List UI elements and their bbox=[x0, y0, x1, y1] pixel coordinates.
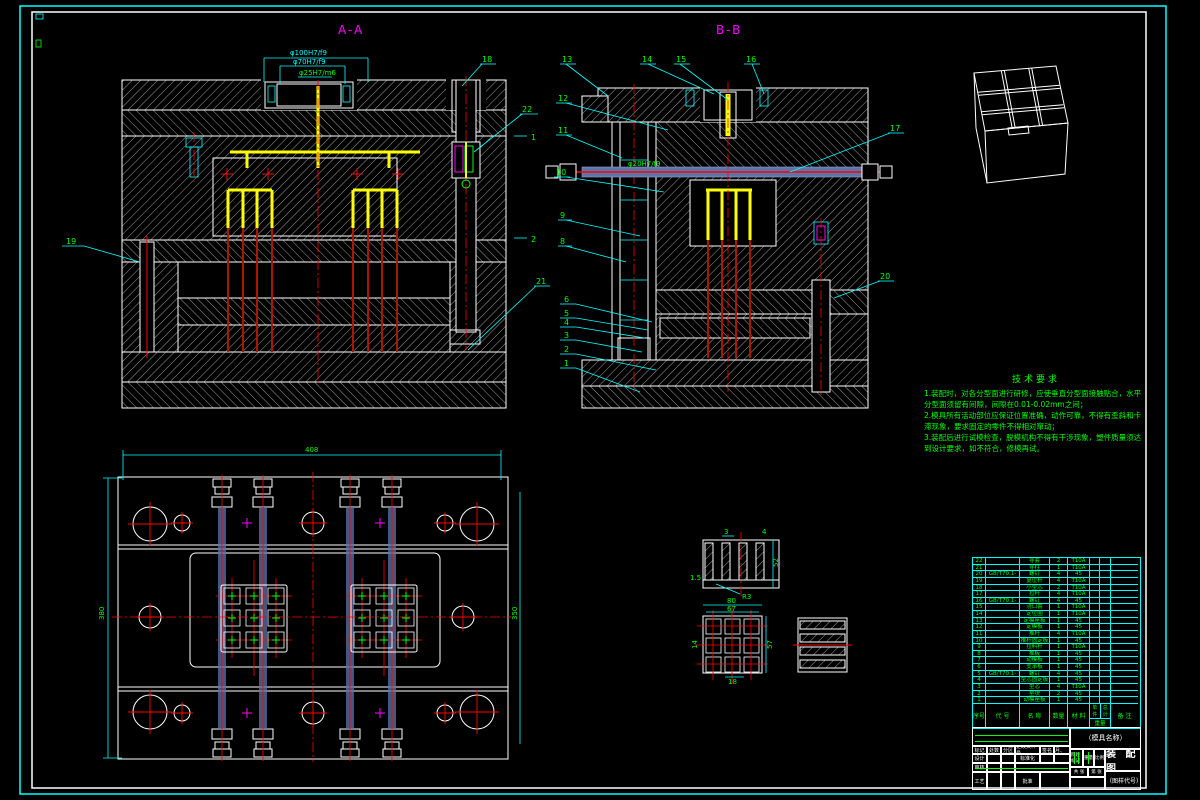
bom-cell-code bbox=[986, 677, 1020, 684]
bom-header-unit: 单件 bbox=[1090, 704, 1101, 718]
bom-cell-no: 16 bbox=[973, 598, 986, 605]
bom-row: 20GB/T70.1-2000螺钉445 bbox=[973, 571, 1140, 578]
section-aa-title: A-A bbox=[338, 23, 364, 37]
bom-cell-no: 15 bbox=[973, 604, 986, 611]
bom-cell-note bbox=[1111, 684, 1138, 691]
bom-cell-name: 复位杆 bbox=[1020, 578, 1050, 585]
bom-cell-no: 8 bbox=[973, 651, 986, 658]
callout-19: 19 bbox=[66, 237, 76, 246]
bom-cell-no: 20 bbox=[973, 571, 986, 578]
bom-cell-qty: 4 bbox=[1050, 571, 1068, 578]
dim-phi70: φ70H7/f9 bbox=[293, 58, 326, 66]
tech-req-line: 滞现象，要求固定的零件不得相对窜动； bbox=[924, 421, 1148, 432]
registration-mark bbox=[36, 40, 41, 47]
bom-cell-mat: 45 bbox=[1068, 598, 1090, 605]
bom-cell-code bbox=[986, 611, 1020, 618]
tb-total-sheets: 共 张 bbox=[1070, 767, 1088, 777]
bom-cell-note bbox=[1111, 611, 1138, 618]
callout-4: 4 bbox=[564, 318, 569, 327]
bom-cell-name: 螺钉 bbox=[1020, 671, 1050, 678]
dim-rod-fit: φ20H7/f9 bbox=[628, 160, 661, 168]
bom-cell-note bbox=[1111, 571, 1138, 578]
dim-d1-r3: R3 bbox=[742, 593, 751, 601]
bom-cell-code bbox=[986, 684, 1020, 691]
mark-1: 1 bbox=[531, 133, 536, 142]
dim-d2-14: 14 bbox=[691, 640, 699, 649]
dim-phi100: φ100H7/f9 bbox=[290, 49, 327, 57]
tb-date: 年、月、日 bbox=[1054, 746, 1070, 754]
dim-350: 350 bbox=[511, 607, 519, 620]
dim-d2-67: 67 bbox=[727, 605, 736, 613]
bom-cell-code bbox=[986, 664, 1020, 671]
bom-row: 13定模座板145 bbox=[973, 618, 1140, 625]
bom-cell-no: 13 bbox=[973, 618, 986, 625]
bom-cell-mat: 45 bbox=[1068, 618, 1090, 625]
bom-cell-total bbox=[1100, 565, 1111, 572]
bom-cell-no: 5 bbox=[973, 671, 986, 678]
bom-row: 15浇口套1T10A bbox=[973, 604, 1140, 611]
bom-cell-qty: 2 bbox=[1050, 558, 1068, 565]
bom-cell-unit bbox=[1090, 638, 1100, 645]
bom-cell-code bbox=[986, 558, 1020, 565]
plan-guide-holes bbox=[128, 502, 499, 734]
bom-cell-name: 推杆 bbox=[1020, 631, 1050, 638]
tb-part-name: （模具名称） bbox=[1070, 728, 1140, 749]
bom-header-name: 名 称 bbox=[1020, 704, 1050, 728]
aa-ejector-plate bbox=[178, 325, 450, 352]
bb-guide-pillar bbox=[612, 84, 656, 392]
bom-header-weight: 单件 总计 重量 bbox=[1090, 704, 1111, 728]
mark-2: 2 bbox=[531, 235, 536, 244]
tech-req-line: 3.装配后进行试模检查，脱模机构不得有干涉现象，塑件质量须达 bbox=[924, 432, 1148, 443]
callout-6: 6 bbox=[564, 295, 569, 304]
bom-cell-code bbox=[986, 638, 1020, 645]
bom-cell-name: 浇口套 bbox=[1020, 604, 1050, 611]
bom-cell-code bbox=[986, 644, 1020, 651]
bom-cell-mat: 45 bbox=[1068, 638, 1090, 645]
bom-cell-name: 螺钉 bbox=[1020, 598, 1050, 605]
plan-view: 408 380 350 bbox=[98, 446, 520, 762]
bom-row: 5GB/T70.1-2000螺钉445 bbox=[973, 671, 1140, 678]
dim-d1-3: 3 bbox=[724, 528, 728, 536]
bb-cavity-plate bbox=[656, 122, 868, 168]
callout-9: 9 bbox=[560, 211, 565, 220]
callout-11: 11 bbox=[558, 126, 568, 135]
bom-cell-qty: 1 bbox=[1050, 677, 1068, 684]
bom-cell-qty: 4 bbox=[1050, 598, 1068, 605]
tech-req-line: 1.装配时，对各分型面进行研修，应使垂直分型面接触贴合，水平 bbox=[924, 388, 1148, 399]
bom-row: 21导柱1T10A bbox=[973, 565, 1140, 572]
bom-row: 19复位杆4T10A bbox=[973, 578, 1140, 585]
bom-cell-unit bbox=[1090, 578, 1100, 585]
bom-cell-qty: 2 bbox=[1050, 691, 1068, 698]
bom-cell-qty: 1 bbox=[1050, 697, 1068, 704]
bom-cell-code bbox=[986, 651, 1020, 658]
bom-cell-qty: 1 bbox=[1050, 664, 1068, 671]
bom-cell-unit bbox=[1090, 618, 1100, 625]
bom-cell-total bbox=[1100, 677, 1111, 684]
bom-cell-code bbox=[986, 691, 1020, 698]
bom-row: 3型芯4T10A bbox=[973, 684, 1140, 691]
bom-cell-mat: T10A bbox=[1068, 558, 1090, 565]
bom-cell-mat: 45 bbox=[1068, 571, 1090, 578]
bom-cell-code bbox=[986, 604, 1020, 611]
bom-cell-unit bbox=[1090, 697, 1100, 704]
bom-cell-mat: T10A bbox=[1068, 585, 1090, 592]
bom-cell-name: 型芯 bbox=[1020, 684, 1050, 691]
bom-cell-note bbox=[1111, 671, 1138, 678]
bom-cell-note bbox=[1111, 638, 1138, 645]
bom-row: 18小型芯2T10A bbox=[973, 585, 1140, 592]
bom-cell-code bbox=[986, 578, 1020, 585]
bom-cell-total bbox=[1100, 578, 1111, 585]
bom-cell-code bbox=[986, 565, 1020, 572]
bom-cell-name: 螺钉 bbox=[1020, 571, 1050, 578]
tb-design: 设计 bbox=[973, 754, 987, 763]
bom-cell-no: 7 bbox=[973, 657, 986, 664]
bom-cell-qty: 4 bbox=[1050, 591, 1068, 598]
tb-count: 处数 bbox=[987, 746, 1001, 754]
bom-cell-mat: T10A bbox=[1068, 631, 1090, 638]
bom-cell-no: 21 bbox=[973, 565, 986, 572]
bom-cell-code: GB/T70.1-2000 bbox=[986, 671, 1020, 678]
bom-row: 14定位圈1T10A bbox=[973, 611, 1140, 618]
callout-21: 21 bbox=[536, 277, 546, 286]
bom-cell-mat: T10A bbox=[1068, 578, 1090, 585]
bom-cell-qty: 4 bbox=[1050, 671, 1068, 678]
bom-cell-name: 拉杆 bbox=[1020, 591, 1050, 598]
bom-cell-unit bbox=[1090, 677, 1100, 684]
bom-cell-total bbox=[1100, 598, 1111, 605]
dim-d2-80: 80 bbox=[727, 597, 736, 605]
bom-cell-note bbox=[1111, 604, 1138, 611]
bom-row: 10推杆固定板145 bbox=[973, 638, 1140, 645]
aa-dimensions: φ100H7/f9 φ70H7/f9 φ25H7/m6 bbox=[264, 49, 368, 84]
bom-row: 16GB/T70.1-2000螺钉445 bbox=[973, 598, 1140, 605]
callout-16: 16 bbox=[746, 55, 756, 64]
bom-cell-unit bbox=[1090, 591, 1100, 598]
section-aa-view: A-A bbox=[62, 23, 550, 408]
aa-support-plate bbox=[122, 240, 506, 262]
bom-cell-unit bbox=[1090, 631, 1100, 638]
bom-cell-name: 拉料杆 bbox=[1020, 644, 1050, 651]
section-bb-title: B-B bbox=[716, 23, 742, 37]
bom-cell-mat: T10A bbox=[1068, 604, 1090, 611]
bom-row: 9拉料杆1T10A bbox=[973, 644, 1140, 651]
registration-mark bbox=[36, 14, 43, 19]
callout-18: 18 bbox=[482, 55, 492, 64]
bom-row: 12定模板145 bbox=[973, 624, 1140, 631]
bom-cell-code bbox=[986, 697, 1020, 704]
bom-cell-note bbox=[1111, 578, 1138, 585]
bom-cell-note bbox=[1111, 677, 1138, 684]
bom-cell-note bbox=[1111, 631, 1138, 638]
plan-dimensions: 408 380 350 bbox=[98, 446, 520, 758]
bom-cell-total bbox=[1100, 631, 1111, 638]
tb-drawing-code: （图样代号） bbox=[1105, 771, 1140, 789]
tb-sign: 签名 bbox=[1040, 746, 1054, 754]
callout-17: 17 bbox=[890, 124, 900, 133]
bom-cell-note bbox=[1111, 644, 1138, 651]
bom-cell-mat: 45 bbox=[1068, 677, 1090, 684]
bom-cell-qty: 1 bbox=[1050, 644, 1068, 651]
tb-sheet-no: 第 张 bbox=[1088, 767, 1105, 777]
bom-cell-unit bbox=[1090, 651, 1100, 658]
callout-22: 22 bbox=[522, 105, 532, 114]
bom-table: 22导套2T10A21导柱1T10A20GB/T70.1-2000螺钉44519… bbox=[972, 557, 1141, 729]
bom-cell-unit bbox=[1090, 691, 1100, 698]
bom-cell-name: 型芯固定板 bbox=[1020, 677, 1050, 684]
tech-req-line: 到设计要求，如不符合，修模再试。 bbox=[924, 443, 1148, 454]
bom-cell-unit bbox=[1090, 571, 1100, 578]
bom-cell-total bbox=[1100, 638, 1111, 645]
bom-cell-qty: 4 bbox=[1050, 684, 1068, 691]
bom-cell-unit bbox=[1090, 664, 1100, 671]
bom-cell-code bbox=[986, 618, 1020, 625]
bom-cell-no: 2 bbox=[973, 691, 986, 698]
callout-5: 5 bbox=[564, 309, 569, 318]
bom-cell-no: 4 bbox=[973, 677, 986, 684]
plan-return-pins bbox=[212, 475, 402, 761]
bom-cell-qty: 4 bbox=[1050, 578, 1068, 585]
bom-cell-name: 推板 bbox=[1020, 651, 1050, 658]
bom-row: 8推板145 bbox=[973, 651, 1140, 658]
bom-cell-note bbox=[1111, 691, 1138, 698]
cavity-center-marks bbox=[228, 592, 410, 644]
bom-cell-note bbox=[1111, 651, 1138, 658]
bom-cell-unit bbox=[1090, 598, 1100, 605]
bom-row: 17拉杆4T10A bbox=[973, 591, 1140, 598]
callout-3: 3 bbox=[564, 331, 569, 340]
bom-cell-mat: T10A bbox=[1068, 565, 1090, 572]
bom-cell-name: 小型芯 bbox=[1020, 585, 1050, 592]
bom-cell-no: 3 bbox=[973, 684, 986, 691]
bom-header-note: 备 注 bbox=[1111, 704, 1138, 728]
dim-d1-52: 52 bbox=[772, 558, 780, 567]
bom-cell-mat: 45 bbox=[1068, 651, 1090, 658]
callout-12: 12 bbox=[558, 94, 568, 103]
bom-cell-unit bbox=[1090, 558, 1100, 565]
bom-cell-code bbox=[986, 585, 1020, 592]
bom-cell-total bbox=[1100, 671, 1111, 678]
bom-cell-mat: T10A bbox=[1068, 644, 1090, 651]
bom-cell-name: 垫块 bbox=[1020, 691, 1050, 698]
bom-row: 2垫块245 bbox=[973, 691, 1140, 698]
bom-cell-total bbox=[1100, 591, 1111, 598]
dim-d1-1p5: 1.5 bbox=[690, 574, 701, 582]
bom-cell-no: 14 bbox=[973, 611, 986, 618]
bom-header-row: 序号 代 号 名 称 数量 材 料 单件 总计 重量 备 注 bbox=[973, 704, 1140, 728]
tb-change-doc: 更改文件号 bbox=[1015, 746, 1040, 754]
bom-cell-mat: 45 bbox=[1068, 624, 1090, 631]
bom-cell-note bbox=[1111, 585, 1138, 592]
bom-cell-unit bbox=[1090, 657, 1100, 664]
bom-cell-name: 定位圈 bbox=[1020, 611, 1050, 618]
bb-support-plate bbox=[656, 290, 868, 314]
bom-cell-note bbox=[1111, 565, 1138, 572]
bom-header-code: 代 号 bbox=[986, 704, 1020, 728]
bom-cell-total bbox=[1100, 657, 1111, 664]
bom-cell-name: 推杆固定板 bbox=[1020, 638, 1050, 645]
bom-cell-unit bbox=[1090, 684, 1100, 691]
bom-cell-mat: 45 bbox=[1068, 671, 1090, 678]
bom-cell-no: 12 bbox=[973, 624, 986, 631]
aa-bottom-clamp-plate bbox=[122, 352, 506, 382]
bom-cell-unit bbox=[1090, 644, 1100, 651]
bom-header-no: 序号 bbox=[973, 704, 986, 728]
bom-row: 4型芯固定板145 bbox=[973, 677, 1140, 684]
technical-requirements: 技术要求 1.装配时，对各分型面进行研修，应使垂直分型面接触贴合，水平 分型面须… bbox=[924, 372, 1148, 454]
bom-cell-unit bbox=[1090, 611, 1100, 618]
bom-header-mat: 材 料 bbox=[1068, 704, 1090, 728]
detail-plan-view: 80 67 57 14 18 bbox=[691, 597, 774, 686]
bom-row: 6支承板145 bbox=[973, 664, 1140, 671]
bom-cell-total bbox=[1100, 618, 1111, 625]
bom-cell-mat: 45 bbox=[1068, 697, 1090, 704]
bom-cell-mat: T10A bbox=[1068, 684, 1090, 691]
callout-1: 1 bbox=[564, 359, 569, 368]
bom-cell-no: 17 bbox=[973, 591, 986, 598]
tb-zone: 分区 bbox=[1001, 746, 1015, 754]
bom-cell-mat: 45 bbox=[1068, 664, 1090, 671]
tb-stage: 阶段标记 bbox=[1070, 749, 1083, 767]
bom-cell-qty: 1 bbox=[1050, 657, 1068, 664]
bom-cell-note bbox=[1111, 657, 1138, 664]
bom-cell-no: 10 bbox=[973, 638, 986, 645]
bom-cell-qty: 1 bbox=[1050, 651, 1068, 658]
tb-scale: 比例 bbox=[1094, 749, 1105, 767]
bom-cell-name: 支承板 bbox=[1020, 664, 1050, 671]
bom-cell-mat: T10A bbox=[1068, 591, 1090, 598]
bom-cell-name: 动模板 bbox=[1020, 657, 1050, 664]
bom-cell-total bbox=[1100, 644, 1111, 651]
bom-row: 22导套2T10A bbox=[973, 558, 1140, 565]
aa-base-plate bbox=[122, 382, 506, 408]
bom-cell-total bbox=[1100, 651, 1111, 658]
bom-rows: 22导套2T10A21导柱1T10A20GB/T70.1-2000螺钉44519… bbox=[973, 558, 1140, 704]
dim-d2-18: 18 bbox=[728, 678, 737, 686]
bom-cell-total bbox=[1100, 611, 1111, 618]
bom-cell-mat: T10A bbox=[1068, 611, 1090, 618]
callout-8: 8 bbox=[560, 237, 565, 246]
bom-cell-total bbox=[1100, 604, 1111, 611]
tb-standardize: 标准化 bbox=[1015, 754, 1040, 763]
tech-req-line: 2.模具所有活动部位应保证位置准确，动作可靠，不得有歪斜和卡 bbox=[924, 410, 1148, 421]
bom-cell-unit bbox=[1090, 624, 1100, 631]
bom-cell-qty: 1 bbox=[1050, 611, 1068, 618]
bom-cell-code bbox=[986, 591, 1020, 598]
bom-cell-total bbox=[1100, 697, 1111, 704]
bom-cell-code: GB/T70.1-2000 bbox=[986, 571, 1020, 578]
bom-cell-no: 6 bbox=[973, 664, 986, 671]
bom-cell-mat: 45 bbox=[1068, 657, 1090, 664]
bom-cell-code bbox=[986, 624, 1020, 631]
bom-cell-total bbox=[1100, 558, 1111, 565]
bom-cell-code bbox=[986, 657, 1020, 664]
bom-cell-total bbox=[1100, 585, 1111, 592]
bom-cell-note bbox=[1111, 591, 1138, 598]
bom-cell-qty: 1 bbox=[1050, 604, 1068, 611]
bom-row: 1动模座板145 bbox=[973, 697, 1140, 704]
dim-408: 408 bbox=[305, 446, 318, 454]
bom-cell-note bbox=[1111, 618, 1138, 625]
bom-cell-name: 动模座板 bbox=[1020, 697, 1050, 704]
bom-cell-note bbox=[1111, 624, 1138, 631]
aa-cavity-retainer-plate bbox=[122, 110, 506, 136]
bom-cell-code: GB/T70.1-2000 bbox=[986, 598, 1020, 605]
bom-cell-total bbox=[1100, 571, 1111, 578]
bom-cell-note bbox=[1111, 558, 1138, 565]
tb-drawing-name: 装 配 图 bbox=[1105, 749, 1140, 771]
bom-cell-note bbox=[1111, 598, 1138, 605]
bom-row: 11推杆4T10A bbox=[973, 631, 1140, 638]
bom-cell-unit bbox=[1090, 604, 1100, 611]
cad-drawing-sheet: { "drawing": { "section_aa": { "title": … bbox=[0, 0, 1200, 800]
bom-cell-name: 定模板 bbox=[1020, 624, 1050, 631]
bom-cell-no: 9 bbox=[973, 644, 986, 651]
dim-380: 380 bbox=[98, 607, 106, 620]
bom-cell-note bbox=[1111, 664, 1138, 671]
detail-side-view bbox=[793, 618, 852, 672]
bom-cell-mat: 45 bbox=[1068, 691, 1090, 698]
dim-d1-4: 4 bbox=[762, 528, 767, 536]
bom-cell-total bbox=[1100, 624, 1111, 631]
callout-20: 20 bbox=[880, 272, 890, 281]
callout-15: 15 bbox=[676, 55, 686, 64]
tb-mark: 标记 bbox=[973, 746, 987, 754]
bom-cell-no: 19 bbox=[973, 578, 986, 585]
callout-13: 13 bbox=[562, 55, 572, 64]
bom-cell-total bbox=[1100, 684, 1111, 691]
callout-2: 2 bbox=[564, 345, 569, 354]
callout-10: 10 bbox=[556, 168, 566, 177]
bom-cell-no: 18 bbox=[973, 585, 986, 592]
bom-cell-name: 导柱 bbox=[1020, 565, 1050, 572]
bom-cell-code bbox=[986, 631, 1020, 638]
isometric-part-view bbox=[974, 66, 1068, 183]
bom-cell-unit bbox=[1090, 565, 1100, 572]
dim-d2-57: 57 bbox=[766, 640, 774, 649]
bom-header-total: 总计 bbox=[1101, 704, 1111, 718]
bom-cell-unit bbox=[1090, 671, 1100, 678]
callout-14: 14 bbox=[642, 55, 652, 64]
detail-section-view: 3 4 52 1.5 R3 bbox=[690, 528, 780, 601]
bom-cell-qty: 1 bbox=[1050, 565, 1068, 572]
section-bb-view: B-B bbox=[546, 23, 904, 408]
bom-cell-no: 1 bbox=[973, 697, 986, 704]
tech-req-line: 分型面须留有间隙，间隙在0.01-0.02mm之间； bbox=[924, 399, 1148, 410]
bom-cell-qty: 1 bbox=[1050, 624, 1068, 631]
bom-cell-qty: 2 bbox=[1050, 585, 1068, 592]
bom-header-qty: 数量 bbox=[1050, 704, 1068, 728]
bom-cell-note bbox=[1111, 697, 1138, 704]
bom-cell-qty: 1 bbox=[1050, 618, 1068, 625]
bom-row: 7动模板145 bbox=[973, 657, 1140, 664]
bom-cell-name: 导套 bbox=[1020, 558, 1050, 565]
dim-phi25: φ25H7/m6 bbox=[299, 69, 336, 77]
tech-req-title: 技术要求 bbox=[924, 372, 1148, 385]
bom-cell-qty: 4 bbox=[1050, 631, 1068, 638]
bom-cell-qty: 1 bbox=[1050, 638, 1068, 645]
tb-process: 工艺 bbox=[973, 772, 987, 789]
bom-cell-no: 11 bbox=[973, 631, 986, 638]
bom-cell-no: 22 bbox=[973, 558, 986, 565]
bom-cell-unit bbox=[1090, 585, 1100, 592]
tb-approve: 批准 bbox=[1015, 772, 1040, 789]
bom-cell-total bbox=[1100, 664, 1111, 671]
bom-cell-total bbox=[1100, 691, 1111, 698]
aa-ejector-retainer-plate bbox=[178, 298, 450, 325]
